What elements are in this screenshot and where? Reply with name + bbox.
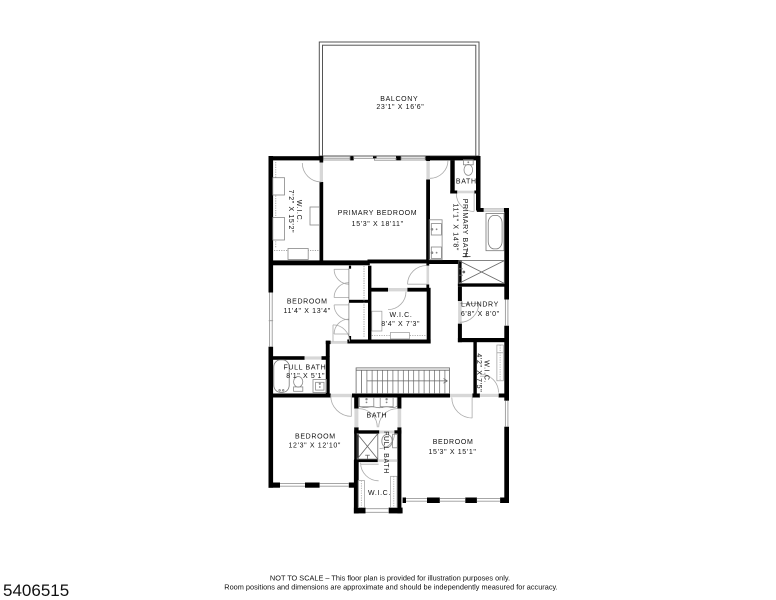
svg-text:W.I.C.: W.I.C. (295, 200, 302, 223)
svg-text:BATH: BATH (456, 178, 477, 185)
svg-text:NOT TO SCALE – This floor plan: NOT TO SCALE – This floor plan is provid… (270, 573, 510, 582)
svg-text:FULL BATH: FULL BATH (382, 431, 389, 474)
svg-text:5406515: 5406515 (3, 581, 69, 600)
svg-text:BEDROOM: BEDROOM (295, 433, 336, 440)
svg-text:W.I.C.: W.I.C. (483, 360, 490, 383)
svg-text:W.I.C.: W.I.C. (390, 312, 413, 319)
svg-text:12'3" X 12'10": 12'3" X 12'10" (289, 443, 342, 450)
svg-text:LAUNDRY: LAUNDRY (461, 301, 499, 308)
svg-text:BATH: BATH (367, 413, 388, 420)
svg-text:23'1" X 16'6": 23'1" X 16'6" (376, 104, 424, 111)
svg-text:11'1" X 14'8": 11'1" X 14'8" (452, 204, 459, 252)
svg-text:6'8" X 8'0": 6'8" X 8'0" (461, 311, 500, 318)
svg-text:FULL BATH: FULL BATH (283, 364, 326, 371)
svg-text:W.I.C.: W.I.C. (368, 490, 391, 497)
svg-text:7'2" X 15'2": 7'2" X 15'2" (287, 190, 294, 233)
svg-text:8'4" X 7'3": 8'4" X 7'3" (381, 321, 420, 328)
svg-text:BALCONY: BALCONY (380, 96, 418, 103)
svg-text:BEDROOM: BEDROOM (433, 439, 474, 446)
svg-text:11'4" X 13'4": 11'4" X 13'4" (283, 308, 331, 315)
svg-text:Room positions and dimensions: Room positions and dimensions are approx… (224, 583, 557, 592)
svg-text:4'2" X 7'5": 4'2" X 7'5" (475, 353, 482, 392)
svg-text:PRIMARY BATH: PRIMARY BATH (461, 199, 468, 259)
svg-text:15'3" X 18'11": 15'3" X 18'11" (352, 221, 404, 228)
svg-text:PRIMARY BEDROOM: PRIMARY BEDROOM (338, 210, 418, 217)
svg-text:15'3" X 15'1": 15'3" X 15'1" (428, 449, 476, 456)
svg-text:8'1" X 5'1": 8'1" X 5'1" (286, 373, 325, 380)
svg-text:BEDROOM: BEDROOM (287, 298, 328, 305)
